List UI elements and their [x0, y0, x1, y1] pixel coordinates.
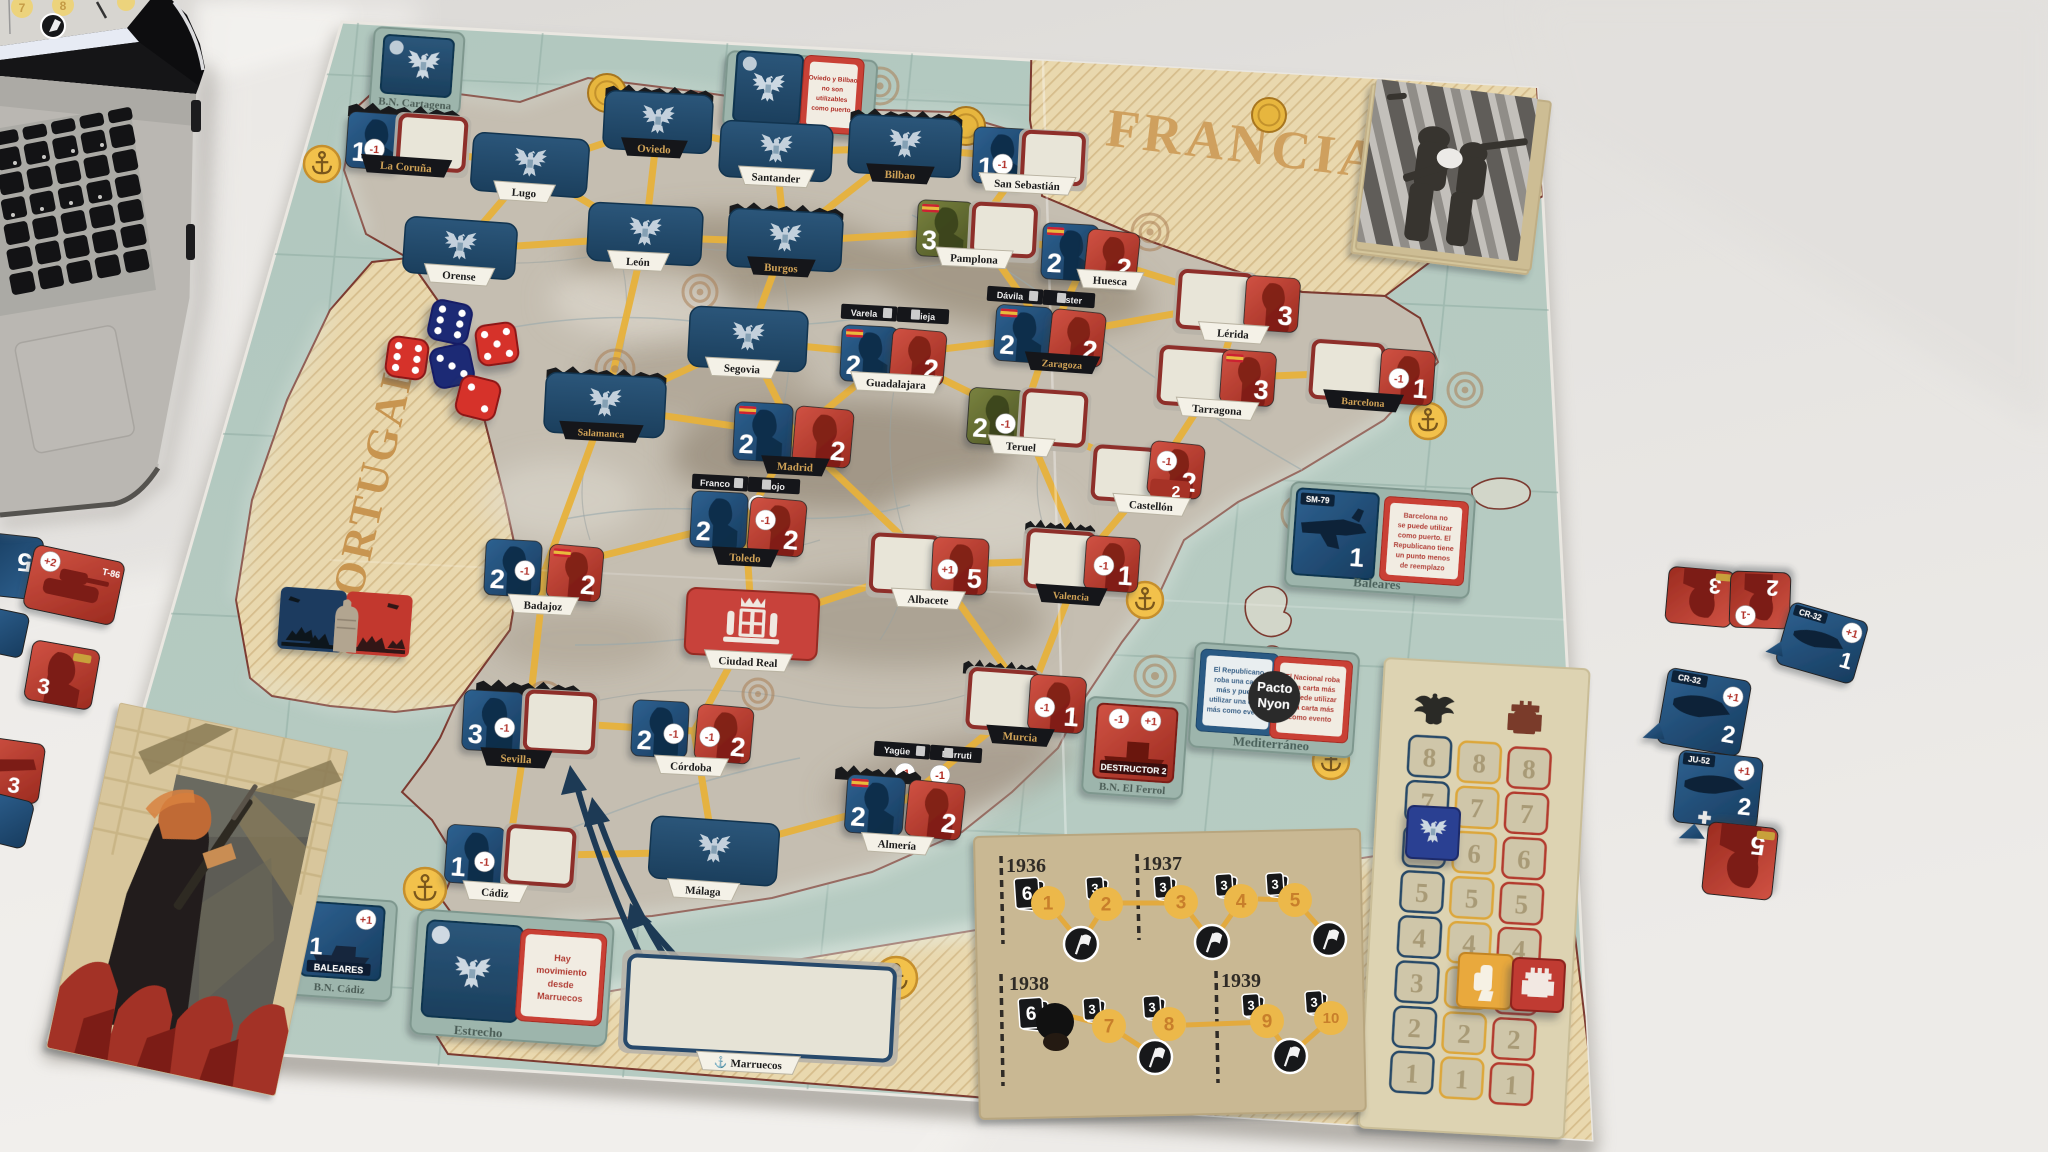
svg-text:Córdoba: Córdoba — [670, 760, 713, 774]
svg-text:3: 3 — [1159, 879, 1167, 894]
svg-text:1: 1 — [1454, 1064, 1469, 1095]
svg-text:1: 1 — [450, 851, 467, 882]
svg-text:2: 2 — [972, 412, 989, 443]
svg-text:Pacto: Pacto — [1257, 679, 1293, 696]
svg-text:desde: desde — [547, 979, 574, 991]
svg-text:2: 2 — [940, 808, 958, 839]
svg-text:+1: +1 — [941, 564, 954, 577]
svg-text:-1: -1 — [1099, 560, 1110, 573]
svg-text:+2: +2 — [43, 555, 58, 569]
svg-text:8: 8 — [1164, 1015, 1175, 1036]
svg-text:SM-79: SM-79 — [1306, 495, 1331, 506]
svg-text:Hay: Hay — [554, 953, 571, 964]
svg-text:2: 2 — [1736, 793, 1752, 821]
svg-text:10: 10 — [1323, 1010, 1340, 1027]
svg-text:Teruel: Teruel — [1005, 440, 1036, 454]
svg-text:+1: +1 — [1144, 716, 1157, 729]
svg-text:-1: -1 — [520, 565, 530, 577]
svg-text:3: 3 — [921, 225, 938, 256]
svg-text:Huesca: Huesca — [1093, 275, 1128, 289]
svg-text:+1: +1 — [359, 914, 372, 927]
svg-text:3: 3 — [1271, 876, 1279, 891]
svg-text:6: 6 — [1467, 838, 1482, 869]
svg-text:Oviedo: Oviedo — [637, 143, 672, 157]
svg-text:-1: -1 — [704, 731, 715, 744]
svg-text:8: 8 — [1472, 748, 1487, 779]
svg-text:3: 3 — [1176, 893, 1187, 914]
svg-text:1: 1 — [1117, 560, 1134, 591]
svg-text:7: 7 — [1519, 799, 1534, 830]
svg-text:-1: -1 — [499, 722, 509, 734]
svg-text:1939: 1939 — [1221, 970, 1261, 992]
svg-text:5: 5 — [1514, 889, 1529, 920]
svg-text:1: 1 — [1412, 373, 1429, 404]
svg-text:1: 1 — [1043, 894, 1054, 915]
svg-text:Murcia: Murcia — [1002, 730, 1038, 744]
svg-text:Málaga: Málaga — [685, 884, 722, 898]
svg-text:1: 1 — [308, 933, 323, 961]
svg-text:-1: -1 — [1161, 455, 1172, 468]
svg-text:7: 7 — [1469, 793, 1484, 824]
svg-text:2: 2 — [782, 525, 800, 556]
svg-text:3: 3 — [1220, 877, 1228, 892]
svg-text:-1: -1 — [1000, 418, 1011, 431]
svg-text:-1: -1 — [1114, 713, 1125, 726]
svg-text:2: 2 — [695, 516, 712, 547]
svg-text:-1: -1 — [997, 159, 1007, 171]
svg-text:-1: -1 — [479, 856, 490, 869]
svg-text:Lérida: Lérida — [1217, 327, 1250, 341]
svg-text:2: 2 — [850, 801, 867, 832]
svg-text:2: 2 — [1506, 1025, 1521, 1056]
svg-text:1938: 1938 — [1009, 973, 1049, 995]
svg-text:2: 2 — [1407, 1013, 1422, 1044]
svg-text:1: 1 — [1348, 542, 1365, 573]
svg-text:5: 5 — [1464, 883, 1479, 914]
svg-text:Pamplona: Pamplona — [950, 252, 999, 267]
svg-text:Santander: Santander — [751, 171, 801, 186]
svg-text:8: 8 — [60, 0, 67, 13]
svg-text:Segovia: Segovia — [724, 363, 761, 377]
svg-text:no son: no son — [822, 85, 844, 93]
svg-text:León: León — [626, 256, 650, 269]
svg-text:Madrid: Madrid — [777, 461, 814, 475]
svg-text:-1: -1 — [369, 143, 380, 156]
svg-text:-1: -1 — [760, 514, 771, 527]
svg-text:5: 5 — [966, 563, 983, 594]
svg-text:3: 3 — [1310, 994, 1318, 1009]
svg-text:5: 5 — [1290, 891, 1301, 912]
svg-text:2: 2 — [1766, 575, 1779, 600]
svg-text:3: 3 — [1148, 999, 1156, 1014]
svg-text:2: 2 — [829, 436, 847, 467]
svg-text:2: 2 — [1046, 248, 1063, 279]
svg-text:2: 2 — [729, 732, 747, 763]
svg-text:Burgos: Burgos — [764, 262, 799, 276]
svg-text:Cádiz: Cádiz — [481, 887, 509, 901]
svg-text:3: 3 — [1088, 1001, 1096, 1016]
svg-text:4: 4 — [1236, 892, 1247, 913]
svg-text:2: 2 — [1457, 1019, 1472, 1050]
svg-text:-1: -1 — [669, 728, 679, 740]
svg-text:3: 3 — [467, 719, 484, 750]
svg-text:4: 4 — [1412, 923, 1427, 954]
svg-text:Franco: Franco — [700, 478, 731, 490]
svg-text:Toledo: Toledo — [729, 552, 761, 566]
svg-text:3: 3 — [1409, 968, 1424, 999]
svg-text:2: 2 — [579, 570, 597, 601]
svg-text:1: 1 — [1404, 1058, 1419, 1089]
svg-text:1936: 1936 — [1006, 855, 1046, 877]
svg-text:2: 2 — [999, 329, 1016, 360]
svg-text:3: 3 — [1253, 374, 1270, 405]
svg-text:Varela: Varela — [850, 308, 878, 319]
svg-text:7: 7 — [19, 1, 26, 15]
svg-text:2: 2 — [489, 564, 506, 595]
svg-text:Sevilla: Sevilla — [500, 753, 532, 767]
svg-text:-1: -1 — [935, 770, 945, 782]
svg-text:1: 1 — [1504, 1070, 1519, 1101]
svg-text:8: 8 — [1422, 742, 1437, 773]
svg-text:-1: -1 — [1394, 373, 1405, 386]
svg-text:2: 2 — [1101, 895, 1112, 916]
svg-text:9: 9 — [1262, 1012, 1273, 1033]
svg-text:Orense: Orense — [442, 269, 476, 283]
svg-text:+1: +1 — [1726, 691, 1740, 705]
svg-text:2: 2 — [738, 429, 755, 460]
svg-text:5: 5 — [1414, 878, 1429, 909]
svg-text:6: 6 — [1025, 1003, 1037, 1025]
svg-text:Dávila: Dávila — [996, 290, 1024, 302]
svg-text:Albacete: Albacete — [907, 593, 949, 607]
svg-text:+1: +1 — [1737, 765, 1751, 778]
svg-text:-1: -1 — [1740, 609, 1750, 621]
svg-text:Nyon: Nyon — [1257, 695, 1291, 712]
svg-text:Lugo: Lugo — [511, 187, 537, 201]
svg-text:8: 8 — [1521, 754, 1536, 785]
svg-text:-1: -1 — [1039, 702, 1050, 715]
svg-text:2: 2 — [636, 725, 653, 756]
svg-text:6: 6 — [1516, 844, 1531, 875]
svg-text:3: 3 — [1277, 300, 1294, 331]
svg-text:Yagüe: Yagüe — [883, 745, 910, 757]
svg-text:1937: 1937 — [1142, 853, 1182, 875]
svg-text:Bilbao: Bilbao — [884, 169, 916, 183]
svg-text:7: 7 — [1104, 1017, 1115, 1038]
svg-text:1: 1 — [1063, 702, 1080, 733]
svg-text:Badajoz: Badajoz — [523, 599, 562, 613]
